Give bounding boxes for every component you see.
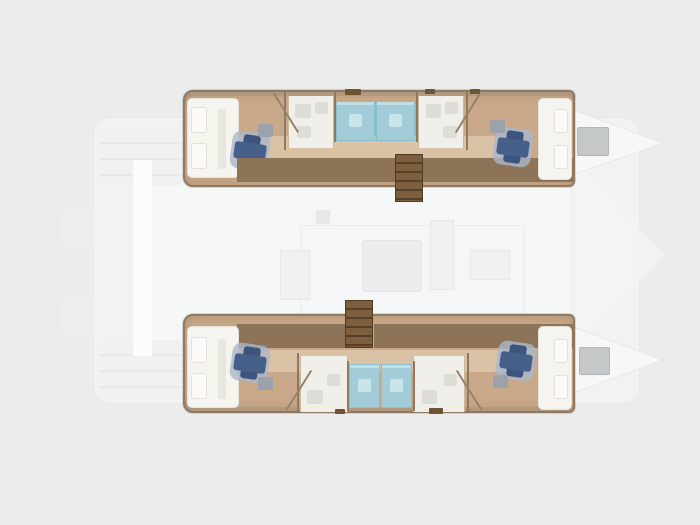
deck-hatch — [429, 408, 443, 414]
upper-hull — [183, 90, 575, 187]
pillow — [191, 373, 207, 399]
sink — [444, 374, 457, 386]
pillow — [191, 337, 207, 363]
sink — [445, 102, 458, 114]
shower-drain — [390, 379, 403, 392]
toilet — [422, 390, 437, 404]
wall — [466, 92, 468, 150]
upper-fore-bed — [538, 98, 572, 180]
seat-cushion — [493, 375, 508, 388]
lower-shower-fore — [381, 364, 412, 408]
bow-platform-upper — [577, 127, 609, 156]
pillow — [191, 143, 207, 169]
wall — [413, 361, 415, 411]
deck-hatch — [345, 89, 361, 95]
lower-hull-corridor — [235, 350, 525, 372]
galley-counter — [430, 220, 454, 290]
lower-aft-navy-pillows — [231, 344, 269, 382]
lower-fore-navy-pillows — [497, 342, 535, 380]
deck-hatch — [425, 89, 435, 94]
sink — [315, 102, 328, 114]
aft-platform-upper — [60, 210, 94, 246]
pillow — [554, 109, 568, 133]
pillow — [191, 107, 207, 133]
deck-seat — [280, 250, 310, 300]
lower-aft-bathroom — [300, 356, 348, 412]
lower-hull-staircase — [345, 300, 373, 348]
shower-drain — [389, 114, 402, 127]
deck-hatch — [470, 89, 480, 94]
floorplan-canvas — [0, 0, 700, 525]
aft-platform-lower — [60, 298, 94, 334]
saloon-table — [362, 240, 422, 292]
lower-shower-aft — [349, 364, 380, 408]
upper-shower-fore — [376, 101, 415, 141]
wardrobe-row — [237, 158, 395, 182]
seat-cushion — [258, 377, 273, 390]
pillow — [554, 339, 568, 363]
wall — [297, 353, 299, 411]
toilet — [426, 104, 441, 118]
lower-hull — [183, 314, 575, 413]
deck-furniture — [470, 250, 510, 280]
upper-fore-navy-pillows — [494, 128, 532, 166]
wall — [334, 92, 336, 142]
upper-aft-bathroom — [288, 96, 334, 148]
toilet — [307, 390, 323, 404]
duvet-fold — [218, 109, 226, 169]
vanity — [297, 126, 311, 138]
wall — [284, 92, 286, 150]
deck-hatch — [335, 409, 345, 414]
sink — [327, 374, 340, 386]
shower-drain — [358, 379, 371, 392]
foredeck-wedge — [575, 160, 665, 350]
lower-fore-bathroom — [413, 356, 465, 412]
wall — [347, 361, 349, 411]
upper-hull-staircase — [395, 154, 423, 202]
wall — [416, 92, 418, 142]
toilet — [295, 104, 311, 118]
cockpit-walkway — [133, 160, 152, 356]
wall — [467, 353, 469, 411]
pillow — [554, 375, 568, 399]
pillow — [554, 145, 568, 169]
seat-cushion — [490, 120, 505, 133]
shower-drain — [349, 114, 362, 127]
seat-cushion — [258, 124, 273, 137]
upper-fore-bathroom — [418, 96, 464, 148]
lower-fore-bed — [538, 326, 572, 410]
duvet-fold — [218, 339, 226, 399]
bow-platform-lower — [579, 347, 610, 375]
mast-step — [313, 207, 333, 227]
upper-shower-aft — [336, 101, 375, 141]
